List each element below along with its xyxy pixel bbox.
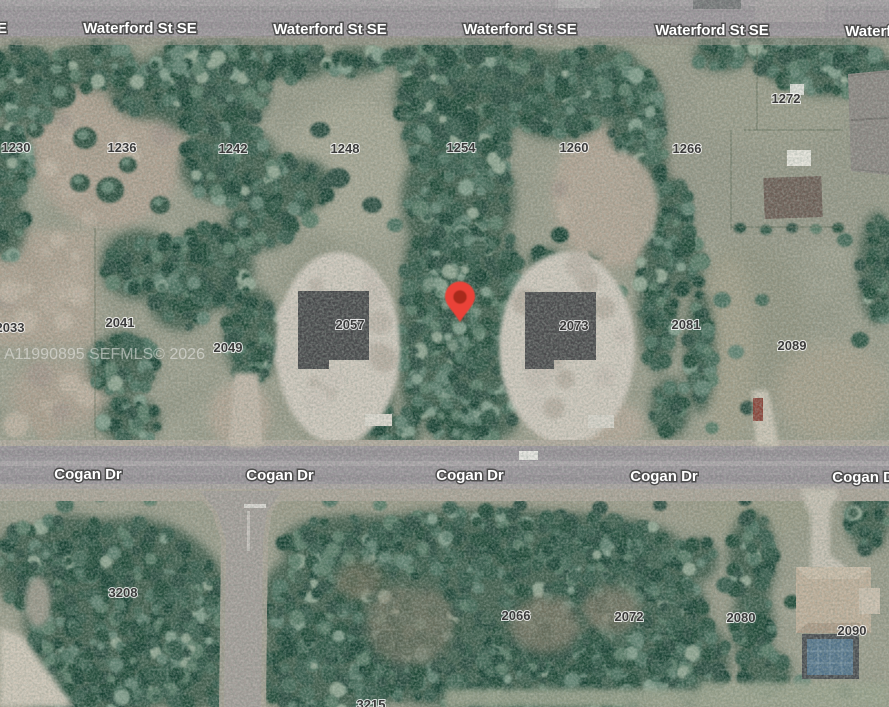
svg-text:E: E [0,20,7,37]
svg-text:Waterford St SE: Waterford St SE [655,22,769,39]
svg-text:2057: 2057 [336,317,365,332]
svg-text:2073: 2073 [560,318,589,333]
svg-text:Cogan Dr: Cogan Dr [832,469,889,486]
svg-text:Cogan Dr: Cogan Dr [54,466,122,483]
svg-text:1254: 1254 [447,140,477,155]
svg-text:2089: 2089 [778,338,807,353]
svg-text:2072: 2072 [615,609,644,624]
svg-text:Waterford St SE: Waterford St SE [273,21,387,38]
svg-text:2049: 2049 [214,340,243,355]
svg-text:1266: 1266 [673,141,702,156]
svg-text:1230: 1230 [2,140,31,155]
svg-text:Waterford St SE: Waterford St SE [845,23,889,40]
svg-text:3208: 3208 [109,585,138,600]
svg-text:Cogan Dr: Cogan Dr [436,467,504,484]
svg-text:1260: 1260 [560,140,589,155]
svg-text:1242: 1242 [219,141,248,156]
svg-text:2066: 2066 [502,608,531,623]
svg-text:2041: 2041 [106,315,135,330]
svg-text:2081: 2081 [672,317,701,332]
svg-text:2033: 2033 [0,320,24,335]
svg-text:A11990895 SEFMLS© 2026: A11990895 SEFMLS© 2026 [4,346,205,363]
svg-text:Cogan Dr: Cogan Dr [630,468,698,485]
svg-text:Waterford St SE: Waterford St SE [463,21,577,38]
svg-text:1272: 1272 [772,91,801,106]
svg-text:1236: 1236 [108,140,137,155]
svg-text:Cogan Dr: Cogan Dr [246,467,314,484]
svg-text:Waterford St SE: Waterford St SE [83,20,197,37]
svg-text:1248: 1248 [331,141,360,156]
svg-text:3215: 3215 [357,697,386,707]
svg-text:2090: 2090 [838,623,867,638]
svg-text:2080: 2080 [727,610,756,625]
